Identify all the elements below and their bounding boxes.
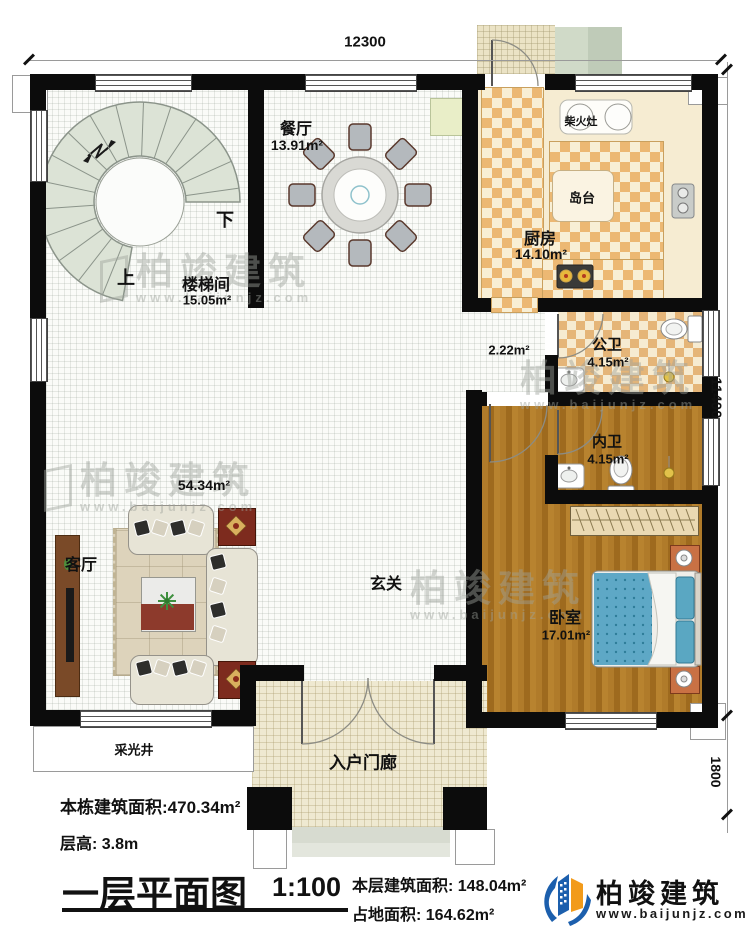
- floor-height-text: 层高: 3.8m: [60, 830, 138, 854]
- window: [30, 110, 48, 182]
- plan-scale: 1:100: [272, 872, 341, 903]
- nightstand-bottom: [670, 666, 700, 694]
- tv-screen: [66, 588, 74, 662]
- nightstand-top: [670, 545, 700, 573]
- room-label-bedroom: 卧室: [549, 604, 581, 628]
- room-label-living: 客厅: [65, 551, 97, 575]
- wall-segment: [252, 665, 304, 681]
- sofa-top: [128, 505, 214, 555]
- wall-segment: [655, 712, 718, 728]
- corner-column: [455, 829, 495, 865]
- wall-segment: [248, 88, 264, 308]
- wall-segment: [462, 298, 492, 312]
- title-underline: [62, 908, 348, 912]
- footprint-area-text: 占地面积: 164.62m²: [352, 901, 494, 925]
- window: [95, 74, 192, 92]
- room-area-inner-bath: 4.15m²: [587, 452, 628, 467]
- wall-segment: [548, 392, 718, 406]
- dimension-right-lower-value: 1800: [708, 756, 724, 787]
- porch-step-1: [292, 827, 450, 843]
- kitchen-counter-pass: [492, 298, 537, 312]
- coffee-table-shelf: [141, 604, 194, 630]
- room-label-dining: 餐厅: [280, 115, 312, 139]
- porch-step-2: [292, 843, 450, 857]
- room-area-kitchen: 14.10m²: [515, 246, 567, 262]
- window: [702, 418, 720, 486]
- stair-up-label: 上: [117, 264, 135, 290]
- label-light-well: 采光井: [114, 740, 153, 759]
- wall-segment: [702, 484, 718, 712]
- room-area-bedroom: 17.01m²: [542, 628, 590, 643]
- room-area-public-bath: 4.15m²: [587, 355, 628, 370]
- room-area-living: 54.34m²: [178, 477, 230, 493]
- wall-segment: [30, 380, 46, 726]
- window: [30, 318, 48, 382]
- window: [702, 310, 720, 377]
- brand-logo: 柏竣建筑 www.baijunjz.com: [538, 864, 746, 928]
- area-corridor: 2.22m²: [488, 343, 529, 358]
- wall-segment: [545, 455, 558, 490]
- side-table-top: [218, 508, 256, 546]
- building-area-text: 本栋建筑面积:470.34m²: [60, 793, 240, 818]
- window: [80, 710, 212, 728]
- room-label-stairwell: 楼梯间: [182, 271, 230, 295]
- wall-segment: [30, 74, 46, 110]
- floor-plan: 柏竣建筑 www.baijunjz.com 柏竣建筑 www.baijunjz.…: [0, 0, 750, 936]
- window: [305, 74, 417, 92]
- wall-segment: [462, 88, 478, 298]
- dining-cabinet: [430, 98, 464, 136]
- wall-segment: [30, 180, 46, 318]
- window: [575, 74, 692, 92]
- corner-column: [253, 829, 287, 869]
- room-label-public-bath: 公卫: [592, 334, 622, 355]
- sofa-right: [206, 548, 258, 666]
- kitchen-counter-bottom: [543, 260, 663, 298]
- window: [565, 712, 657, 730]
- room-label-foyer: 玄关: [370, 570, 402, 594]
- wall-segment: [466, 712, 565, 728]
- wall-segment: [702, 74, 718, 310]
- dimension-right-upper-value: 11400: [708, 378, 725, 419]
- brand-site: www.baijunjz.com: [596, 906, 748, 921]
- stair-down-label: 下: [216, 206, 234, 232]
- wall-segment: [30, 710, 80, 726]
- porch-column: [247, 787, 292, 830]
- wardrobe: [570, 506, 699, 536]
- floor-area-text: 本层建筑面积: 148.04m²: [352, 872, 526, 896]
- kitchen-counter-left: [482, 88, 543, 298]
- outdoor-step-2: [588, 27, 622, 74]
- brand-logo-icon: [538, 864, 592, 928]
- wall-segment: [210, 710, 256, 726]
- public-bath-floor: [558, 312, 702, 392]
- sofa-bottom: [130, 655, 214, 705]
- dimension-line-top: [28, 60, 722, 61]
- label-island: 岛台: [569, 188, 595, 207]
- wall-segment: [545, 355, 558, 392]
- porch-column: [443, 787, 487, 830]
- wall-segment: [545, 490, 718, 504]
- room-area-dining: 13.91m²: [271, 137, 323, 153]
- room-area-stairwell: 15.05m²: [183, 293, 231, 308]
- room-label-inner-bath: 内卫: [592, 431, 622, 452]
- label-wood-stove: 柴火灶: [565, 113, 598, 129]
- outdoor-step-1: [555, 27, 588, 74]
- outdoor-landing: [477, 25, 555, 74]
- dimension-top-value: 12300: [344, 34, 386, 51]
- wall-segment: [466, 390, 482, 712]
- wall-segment: [545, 74, 575, 90]
- room-label-porch: 入户门廊: [329, 749, 397, 774]
- wall-segment: [537, 298, 718, 312]
